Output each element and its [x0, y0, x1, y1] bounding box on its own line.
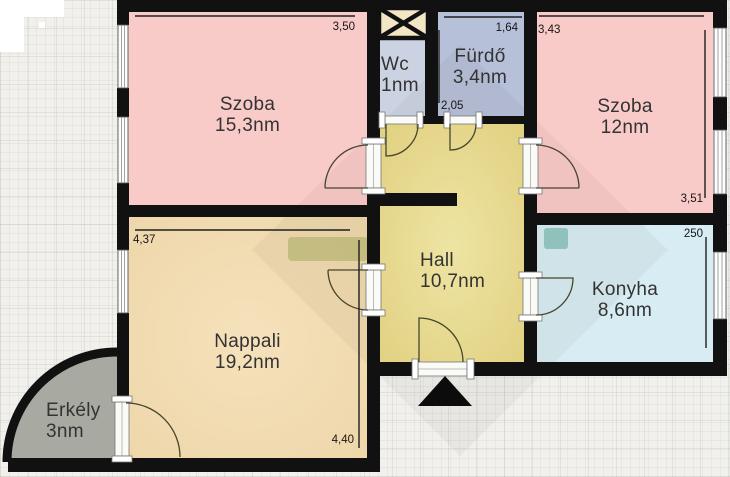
- room-area: 12nm: [537, 117, 713, 138]
- watermark-green-patch: [288, 237, 368, 261]
- room-area: 8,6nm: [537, 300, 713, 321]
- watermark-teal-patch: [544, 228, 568, 249]
- window: [118, 25, 128, 88]
- floorplan-drawing: [0, 0, 730, 477]
- room-label-wc: Wc 1nm: [381, 54, 419, 96]
- room-name: Fürdő: [434, 46, 526, 67]
- room-label-szoba-1: Szoba 15,3nm: [128, 94, 367, 136]
- window: [714, 28, 726, 97]
- room-area: 15,3nm: [128, 115, 367, 136]
- window: [714, 252, 726, 319]
- dim-label-szoba-2-width: 3,43: [538, 24, 560, 36]
- window: [714, 130, 726, 194]
- room-area: 1nm: [381, 75, 419, 96]
- room-area: 19,2nm: [128, 352, 367, 373]
- dim-label-nappali-depth: 4,40: [326, 434, 354, 446]
- dim-label-szoba-2-depth: 3,51: [674, 193, 703, 205]
- shaft-symbol: [379, 8, 428, 38]
- room-area: 3nm: [46, 421, 101, 442]
- room-label-furdo: Fürdő 3,4nm: [434, 46, 526, 88]
- room-label-erkely: Erkély 3nm: [46, 400, 101, 442]
- room-name: Erkély: [46, 400, 101, 421]
- room-name: Wc: [381, 54, 419, 75]
- window: [118, 250, 128, 313]
- room-label-nappali: Nappali 19,2nm: [128, 331, 367, 373]
- room-name: Nappali: [128, 331, 367, 352]
- floorplan-canvas: Szoba 15,3nm Wc 1nm Fürdő 3,4nm Szoba 12…: [0, 0, 730, 477]
- room-name: Szoba: [537, 96, 713, 117]
- dim-label-furdo-width: 1,64: [488, 22, 518, 34]
- room-label-hall: Hall 10,7nm: [420, 250, 485, 292]
- room-label-konyha: Konyha 8,6nm: [537, 279, 713, 321]
- room-name: Konyha: [537, 279, 713, 300]
- room-area: 10,7nm: [420, 271, 485, 292]
- dim-label-nappali-width: 4,37: [133, 234, 155, 246]
- room-label-szoba-2: Szoba 12nm: [537, 96, 713, 138]
- dim-label-szoba-1-width: 3,50: [323, 21, 355, 33]
- window: [118, 117, 128, 183]
- dim-label-furdo-depth: 2,05: [441, 100, 463, 112]
- room-name: Szoba: [128, 94, 367, 115]
- dim-label-konyha-depth: 250: [679, 228, 703, 240]
- room-name: Hall: [420, 250, 485, 271]
- room-area: 3,4nm: [434, 67, 526, 88]
